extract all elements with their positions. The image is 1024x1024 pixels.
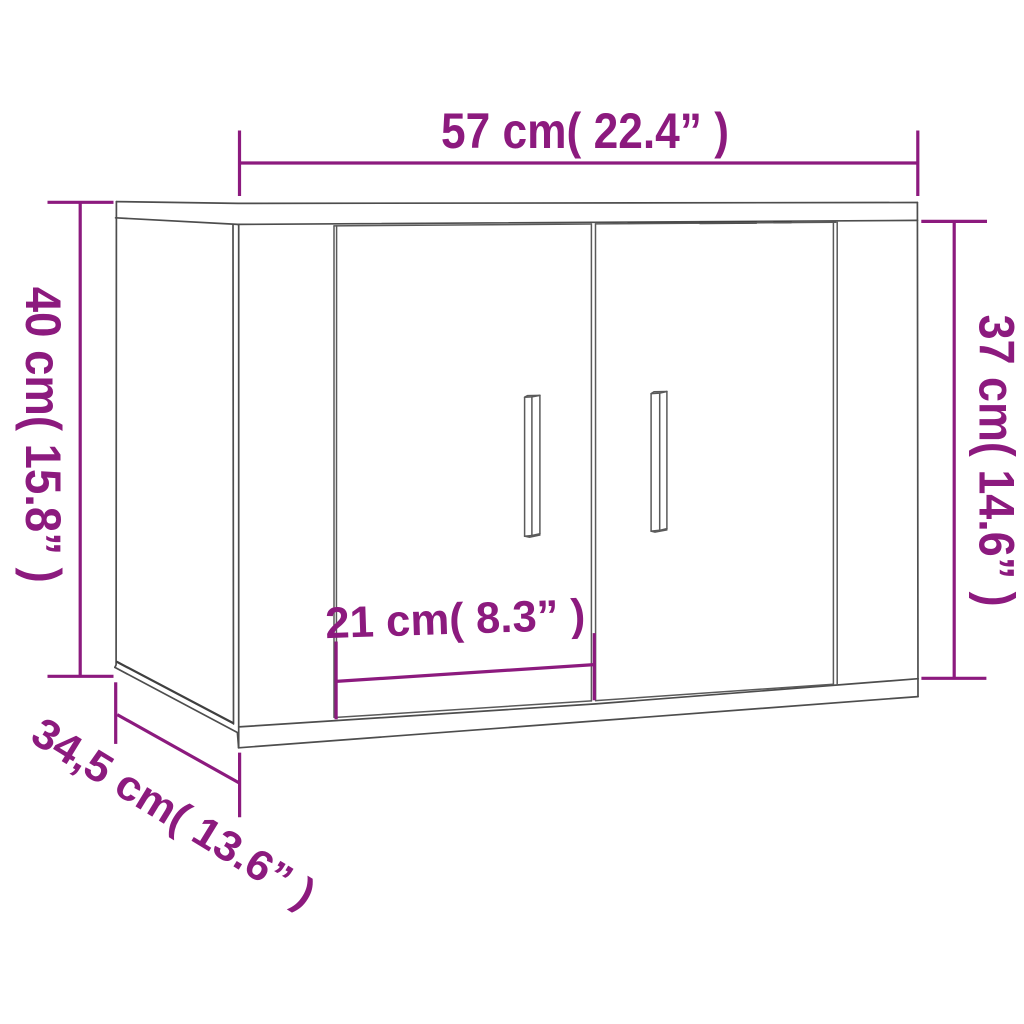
svg-text:40 cm( 15.8” ): 40 cm( 15.8” ) — [15, 287, 72, 583]
svg-text:21 cm( 8.3” ): 21 cm( 8.3” ) — [325, 591, 586, 649]
svg-text:57 cm( 22.4” ): 57 cm( 22.4” ) — [441, 102, 729, 159]
svg-text:37 cm( 14.6” ): 37 cm( 14.6” ) — [968, 315, 1024, 607]
